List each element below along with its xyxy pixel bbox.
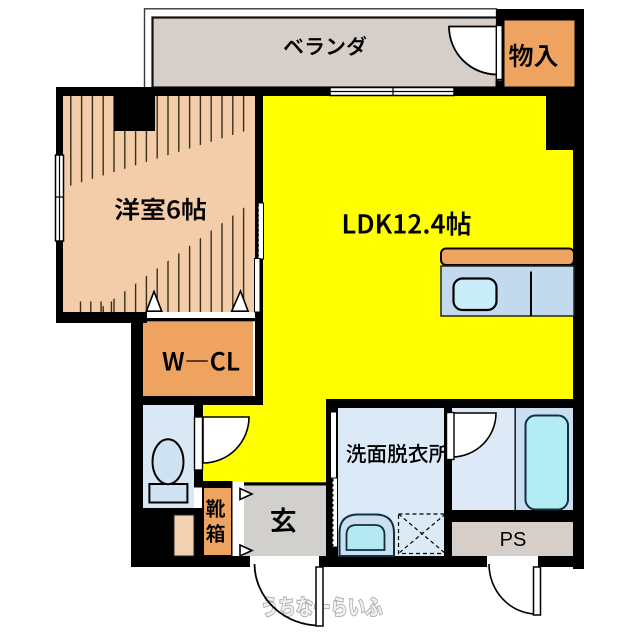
svg-text:PS: PS	[500, 529, 527, 551]
